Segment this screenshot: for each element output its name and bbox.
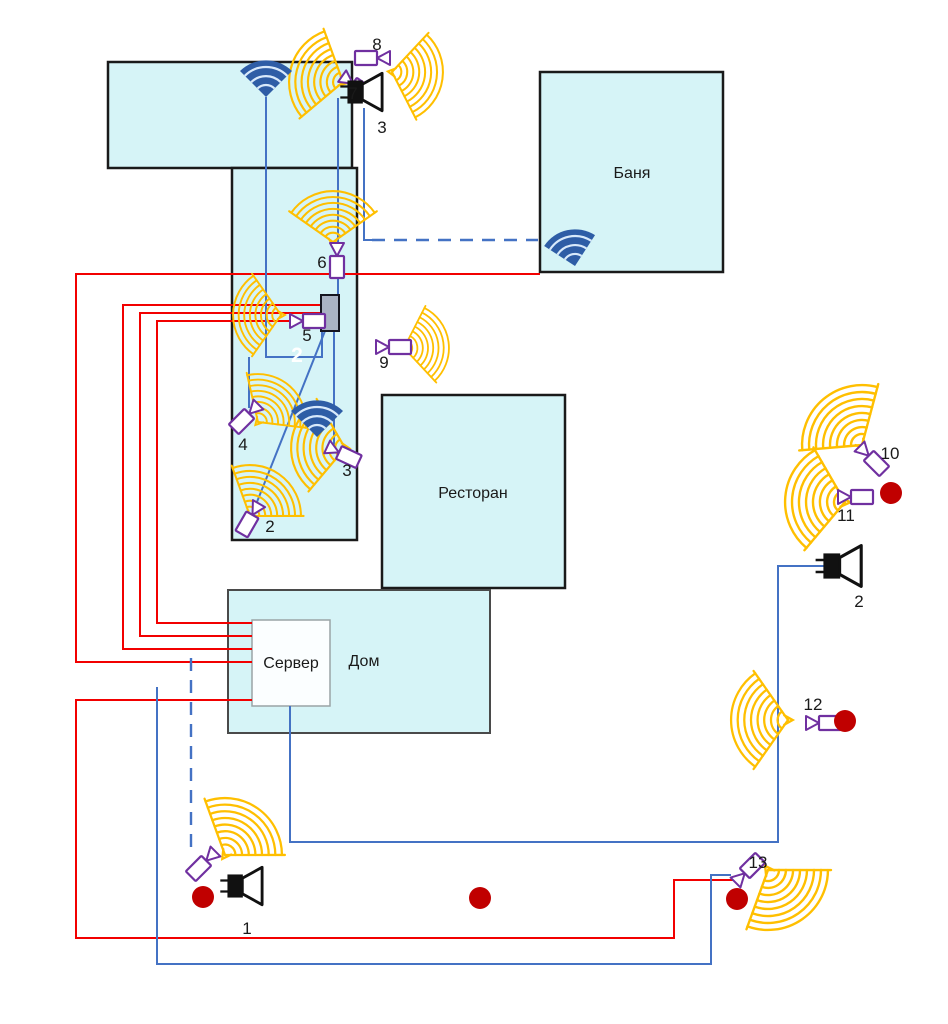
speaker-icon-1 — [220, 867, 262, 904]
building-label-house: Дом — [349, 653, 380, 670]
speaker-label-1: 1 — [242, 919, 251, 938]
camera-label-12: 12 — [804, 695, 823, 714]
camera-label-11: 11 — [837, 506, 855, 525]
camera-label-2: 2 — [265, 517, 274, 536]
camera-label-10: 10 — [881, 444, 900, 463]
building-label-server: Сервер — [263, 655, 319, 672]
power-cable-perimeter — [76, 700, 736, 938]
camera-icon-south — [186, 847, 221, 882]
camera-label-9: 9 — [379, 353, 388, 372]
camera-label-13: 13 — [749, 853, 768, 872]
speaker-label-2: 2 — [854, 592, 863, 611]
camera-icon-6 — [330, 243, 344, 278]
camera-label-3: 3 — [342, 461, 351, 480]
alarm-dot-2 — [834, 710, 856, 732]
alarm-dot-4 — [469, 887, 491, 909]
alarm-dot-1 — [880, 482, 902, 504]
alarm-dot-5 — [726, 888, 748, 910]
building-label-banya: Баня — [614, 165, 651, 182]
camera-icon-9 — [376, 340, 411, 354]
building-label-restaurant: Ресторан — [438, 485, 508, 502]
zone-label-2: 2 — [291, 344, 303, 367]
camera-label-5: 5 — [302, 326, 311, 345]
coverage-fan-icon-cam12 — [731, 671, 793, 769]
alarm-dot-3 — [192, 886, 214, 908]
camera-label-7: 7 — [348, 84, 357, 103]
camera-label-4: 4 — [238, 435, 247, 454]
speaker-label-3: 3 — [377, 118, 386, 137]
site-plan-diagram: Баня Ресторан Дом Сервер 8 7 6 5 9 4 3 2… — [0, 0, 948, 1024]
camera-label-8: 8 — [372, 35, 381, 54]
camera-label-6: 6 — [317, 253, 326, 272]
coverage-fan-icon-cam8 — [382, 28, 449, 123]
camera-icon-11 — [838, 490, 873, 504]
